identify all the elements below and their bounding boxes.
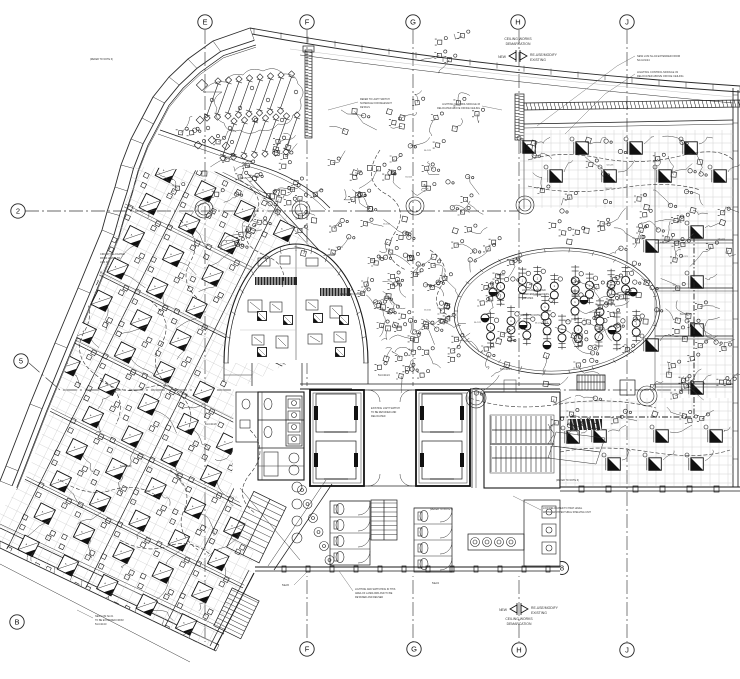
svg-text:WITHIN ARCHITECTURAL SHELVING: WITHIN ARCHITECTURAL SHELVING UNIT xyxy=(543,511,591,514)
svg-text:NEW: NEW xyxy=(498,55,507,59)
svg-text:LIGHTING AND SWITCHING IN THIS: LIGHTING AND SWITCHING IN THIS xyxy=(355,588,396,591)
svg-text:5/LC/21: 5/LC/21 xyxy=(718,238,726,240)
svg-text:5/LC/21: 5/LC/21 xyxy=(589,312,597,314)
svg-text:5/E/24: 5/E/24 xyxy=(432,582,440,585)
svg-text:E: E xyxy=(202,18,207,27)
svg-text:5/LC/21: 5/LC/21 xyxy=(607,165,615,167)
svg-text:LIGHTING CONTROL MODULE 33: LIGHTING CONTROL MODULE 33 xyxy=(442,103,480,106)
svg-text:5/LC/21: 5/LC/21 xyxy=(424,150,432,152)
svg-text:EXISTING: EXISTING xyxy=(530,58,546,62)
svg-text:5/LC/21: 5/LC/21 xyxy=(565,321,573,323)
svg-text:(REFER TO NOTE 6): (REFER TO NOTE 6) xyxy=(340,293,363,296)
svg-text:H: H xyxy=(516,646,521,655)
svg-text:5/LC/21: 5/LC/21 xyxy=(605,188,613,190)
svg-text:REFER TO LIGHT SWITCH: REFER TO LIGHT SWITCH xyxy=(360,98,390,101)
svg-text:F: F xyxy=(305,645,310,654)
svg-text:NEW: NEW xyxy=(499,608,508,612)
svg-text:ADJACENT TO ACCESS: ADJACENT TO ACCESS xyxy=(522,293,549,296)
svg-text:5/LC/21: 5/LC/21 xyxy=(681,256,689,258)
svg-text:RELOCATED ABOVE OFFICE CEILING: RELOCATED ABOVE OFFICE CEILING xyxy=(637,74,684,78)
svg-text:LCM 40: LCM 40 xyxy=(100,261,109,264)
svg-text:RELOCATED ABOVE OFFICE CEILING: RELOCATED ABOVE OFFICE CEILING xyxy=(437,107,480,110)
svg-text:5/LC/21/1F: 5/LC/21/1F xyxy=(95,623,107,626)
svg-text:B: B xyxy=(14,618,19,627)
svg-text:5/LC/21: 5/LC/21 xyxy=(673,243,681,245)
svg-text:5/LC/21/24: 5/LC/21/24 xyxy=(637,58,650,62)
svg-text:5/LC/21: 5/LC/21 xyxy=(535,323,543,325)
svg-text:RE-USE/MODIFY: RE-USE/MODIFY xyxy=(530,53,558,57)
svg-text:LOW RELOCATED TO HIGH LEVEL: LOW RELOCATED TO HIGH LEVEL xyxy=(543,507,583,510)
svg-text:HATCHES: HATCHES xyxy=(522,297,534,300)
svg-text:RELOCATED: RELOCATED xyxy=(371,415,386,418)
svg-text:J: J xyxy=(625,646,629,655)
svg-text:5/LC/21: 5/LC/21 xyxy=(383,223,391,225)
svg-text:SCHEDULE FOR RELEVANT: SCHEDULE FOR RELEVANT xyxy=(360,102,392,105)
svg-text:RE-USE/MODIFY: RE-USE/MODIFY xyxy=(531,606,559,610)
svg-text:5/LC/21/2F: 5/LC/21/2F xyxy=(205,423,217,426)
svg-text:H: H xyxy=(515,18,520,27)
svg-text:5/LC/21: 5/LC/21 xyxy=(242,218,250,220)
svg-text:(REFER TO NOTE 6): (REFER TO NOTE 6) xyxy=(90,58,113,61)
svg-text:RETAINED AND REUSED: RETAINED AND REUSED xyxy=(355,596,383,599)
svg-text:5/LC/21: 5/LC/21 xyxy=(405,176,413,178)
svg-text:CEILING WORKS: CEILING WORKS xyxy=(505,617,533,621)
svg-text:F: F xyxy=(305,18,310,27)
svg-text:5/LC/21: 5/LC/21 xyxy=(336,247,344,249)
svg-text:5/LC/21/24: 5/LC/21/24 xyxy=(378,374,390,377)
svg-text:TO BE EXTENDED FROM: TO BE EXTENDED FROM xyxy=(95,619,124,622)
svg-text:5: 5 xyxy=(19,357,23,366)
svg-text:5/LC/21: 5/LC/21 xyxy=(247,232,255,234)
svg-text:5/LC/21: 5/LC/21 xyxy=(607,281,615,283)
svg-text:EXISTING LIGHT SWITCH: EXISTING LIGHT SWITCH xyxy=(371,407,400,410)
svg-text:DETAILS: DETAILS xyxy=(360,106,370,109)
svg-text:G: G xyxy=(410,18,416,27)
svg-text:2: 2 xyxy=(16,207,20,216)
svg-text:NEW LCM No.04 EXTENDED FROM: NEW LCM No.04 EXTENDED FROM xyxy=(637,54,680,58)
svg-text:J: J xyxy=(625,18,629,27)
svg-text:5/LC/21/24: 5/LC/21/24 xyxy=(680,313,692,316)
svg-text:TO BE RETAINED AND: TO BE RETAINED AND xyxy=(371,411,397,414)
svg-text:DEMARCATION: DEMARCATION xyxy=(507,622,532,626)
svg-text:5/LC/21: 5/LC/21 xyxy=(424,310,432,312)
svg-text:5/LC/21/2F: 5/LC/21/2F xyxy=(120,465,132,468)
svg-text:DEMARCATION: DEMARCATION xyxy=(506,42,531,46)
svg-text:AREA OF LANDLORD AND TO BE: AREA OF LANDLORD AND TO BE xyxy=(355,592,393,595)
svg-text:EXISTING: EXISTING xyxy=(531,611,547,615)
svg-text:NEW LCM No.01: NEW LCM No.01 xyxy=(95,615,114,618)
svg-text:5/LC/21/24: 5/LC/21/24 xyxy=(500,368,512,371)
svg-text:CIRCUIT RELOCATED: CIRCUIT RELOCATED xyxy=(100,253,125,256)
svg-text:CEILING WORKS: CEILING WORKS xyxy=(504,37,532,41)
svg-text:LIGHTING CONTROL MODULE 33: LIGHTING CONTROL MODULE 33 xyxy=(637,70,679,74)
svg-text:(REFER TO NOTE 6): (REFER TO NOTE 6) xyxy=(556,479,579,482)
svg-text:G: G xyxy=(411,645,417,654)
svg-text:FROM LCM 28 TO: FROM LCM 28 TO xyxy=(100,257,120,260)
svg-text:5/LC/21: 5/LC/21 xyxy=(474,322,482,324)
svg-text:5/LC/21: 5/LC/21 xyxy=(640,194,648,196)
svg-text:5/E/26: 5/E/26 xyxy=(282,584,290,587)
svg-text:(REFER TO NOTE 6): (REFER TO NOTE 6) xyxy=(520,314,543,317)
svg-text:(REFER TO NOTE 6): (REFER TO NOTE 6) xyxy=(430,508,453,511)
svg-text:LIGHTS RELOCATED: LIGHTS RELOCATED xyxy=(522,289,546,292)
svg-text:8: 8 xyxy=(560,564,564,573)
